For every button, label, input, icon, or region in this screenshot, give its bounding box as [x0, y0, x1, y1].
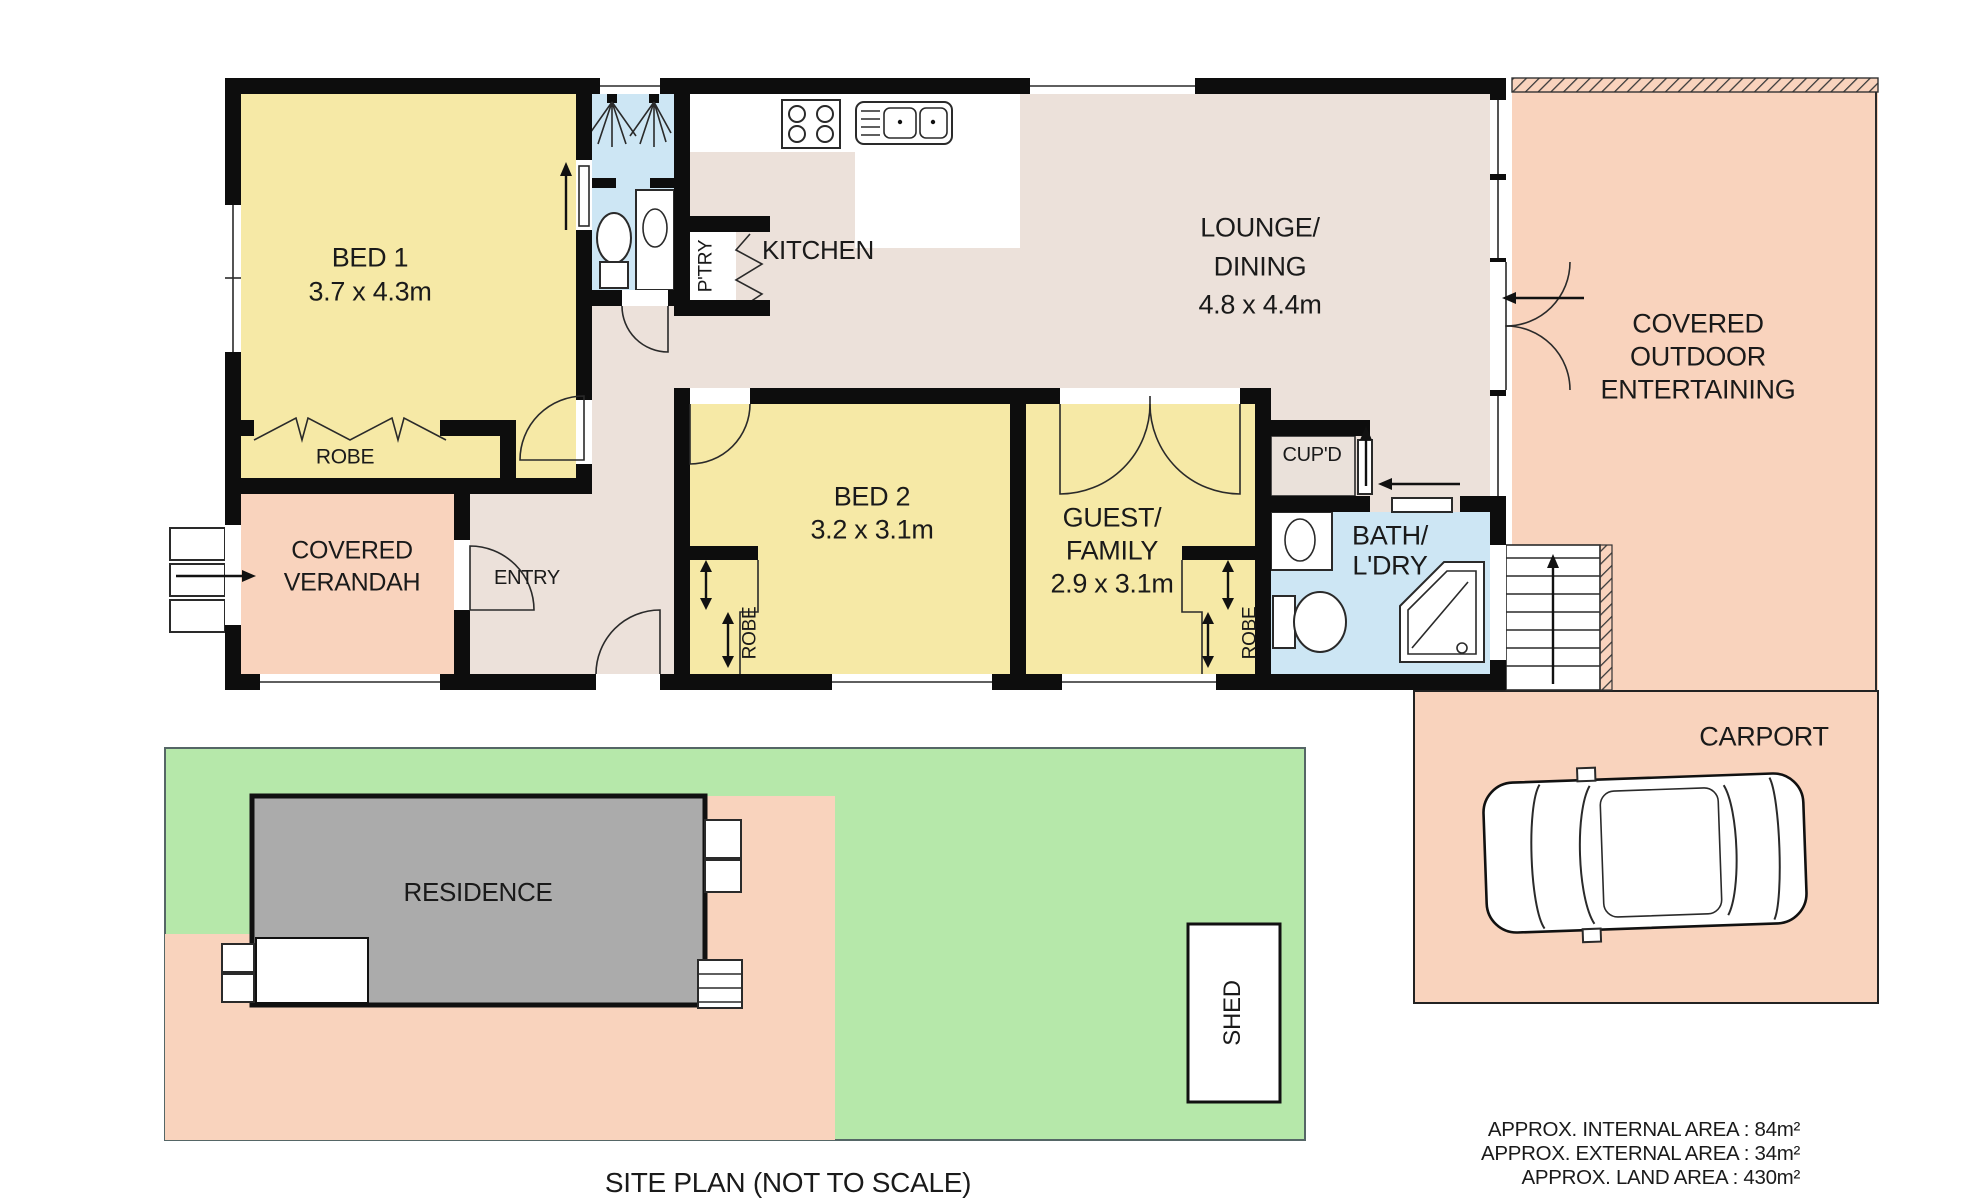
lounge-dims: 4.8 x 4.4m: [1198, 292, 1321, 319]
bed2-label: BED 2: [834, 484, 911, 511]
ensuite-toilet-symbol: [597, 213, 631, 288]
residence-label: RESIDENCE: [404, 879, 553, 905]
outdoor-label-line3: ENTERTAINING: [1601, 377, 1796, 404]
bed1-label: BED 1: [332, 245, 409, 272]
room-floors: [241, 94, 1490, 674]
verandah-label-line2: VERANDAH: [284, 571, 421, 596]
pantry-label: P'TRY: [697, 240, 716, 292]
bed1-robe-label: ROBE: [316, 447, 374, 468]
bath-toilet-symbol: [1273, 592, 1346, 652]
lounge-label-line2: DINING: [1214, 254, 1307, 281]
bath-basin-symbol: [1271, 512, 1332, 570]
verandah-label-line1: COVERED: [291, 539, 413, 564]
stairs-symbol: [1506, 545, 1612, 690]
guest-robe-label: ROBE: [1241, 607, 1260, 660]
shed-label: SHED: [1221, 980, 1245, 1045]
land-area-text: APPROX. LAND AREA : 430m²: [1481, 1166, 1800, 1190]
external-area-text: APPROX. EXTERNAL AREA : 34m²: [1481, 1142, 1800, 1166]
outdoor-label-line1: COVERED: [1632, 311, 1763, 338]
floorplan-page: BED 1 3.7 x 4.3m ROBE P'TRY KITCHEN LOUN…: [0, 0, 1975, 1200]
bath-label-line1: BATH/: [1352, 523, 1428, 550]
guest-label-line1: GUEST/: [1063, 505, 1162, 532]
carport-label: CARPORT: [1699, 724, 1828, 751]
site-plan-caption: SITE PLAN (NOT TO SCALE): [605, 1169, 971, 1197]
guest-dims: 2.9 x 3.1m: [1050, 571, 1173, 598]
guest-label-line2: FAMILY: [1066, 538, 1158, 565]
bed1-dims: 3.7 x 4.3m: [308, 279, 431, 306]
cupboard-label: CUP'D: [1283, 445, 1342, 465]
area-summary: APPROX. INTERNAL AREA : 84m² APPROX. EXT…: [1481, 1118, 1800, 1190]
bath-label-line2: L'DRY: [1352, 553, 1427, 580]
entry-label: ENTRY: [494, 568, 560, 588]
car-symbol: [1482, 760, 1808, 945]
lounge-label-line1: LOUNGE/: [1200, 215, 1319, 242]
bed2-dims: 3.2 x 3.1m: [810, 517, 933, 544]
internal-area-text: APPROX. INTERNAL AREA : 84m²: [1481, 1118, 1800, 1142]
verandah-steps-symbol: [170, 528, 225, 632]
ensuite-basin-symbol: [636, 190, 674, 290]
kitchen-label: KITCHEN: [762, 237, 874, 263]
bed2-robe-label: ROBE: [741, 607, 760, 660]
site-plan-drawing: [165, 748, 1305, 1140]
outdoor-label-line2: OUTDOOR: [1630, 344, 1766, 371]
floorplan-drawing: [0, 0, 1975, 1200]
